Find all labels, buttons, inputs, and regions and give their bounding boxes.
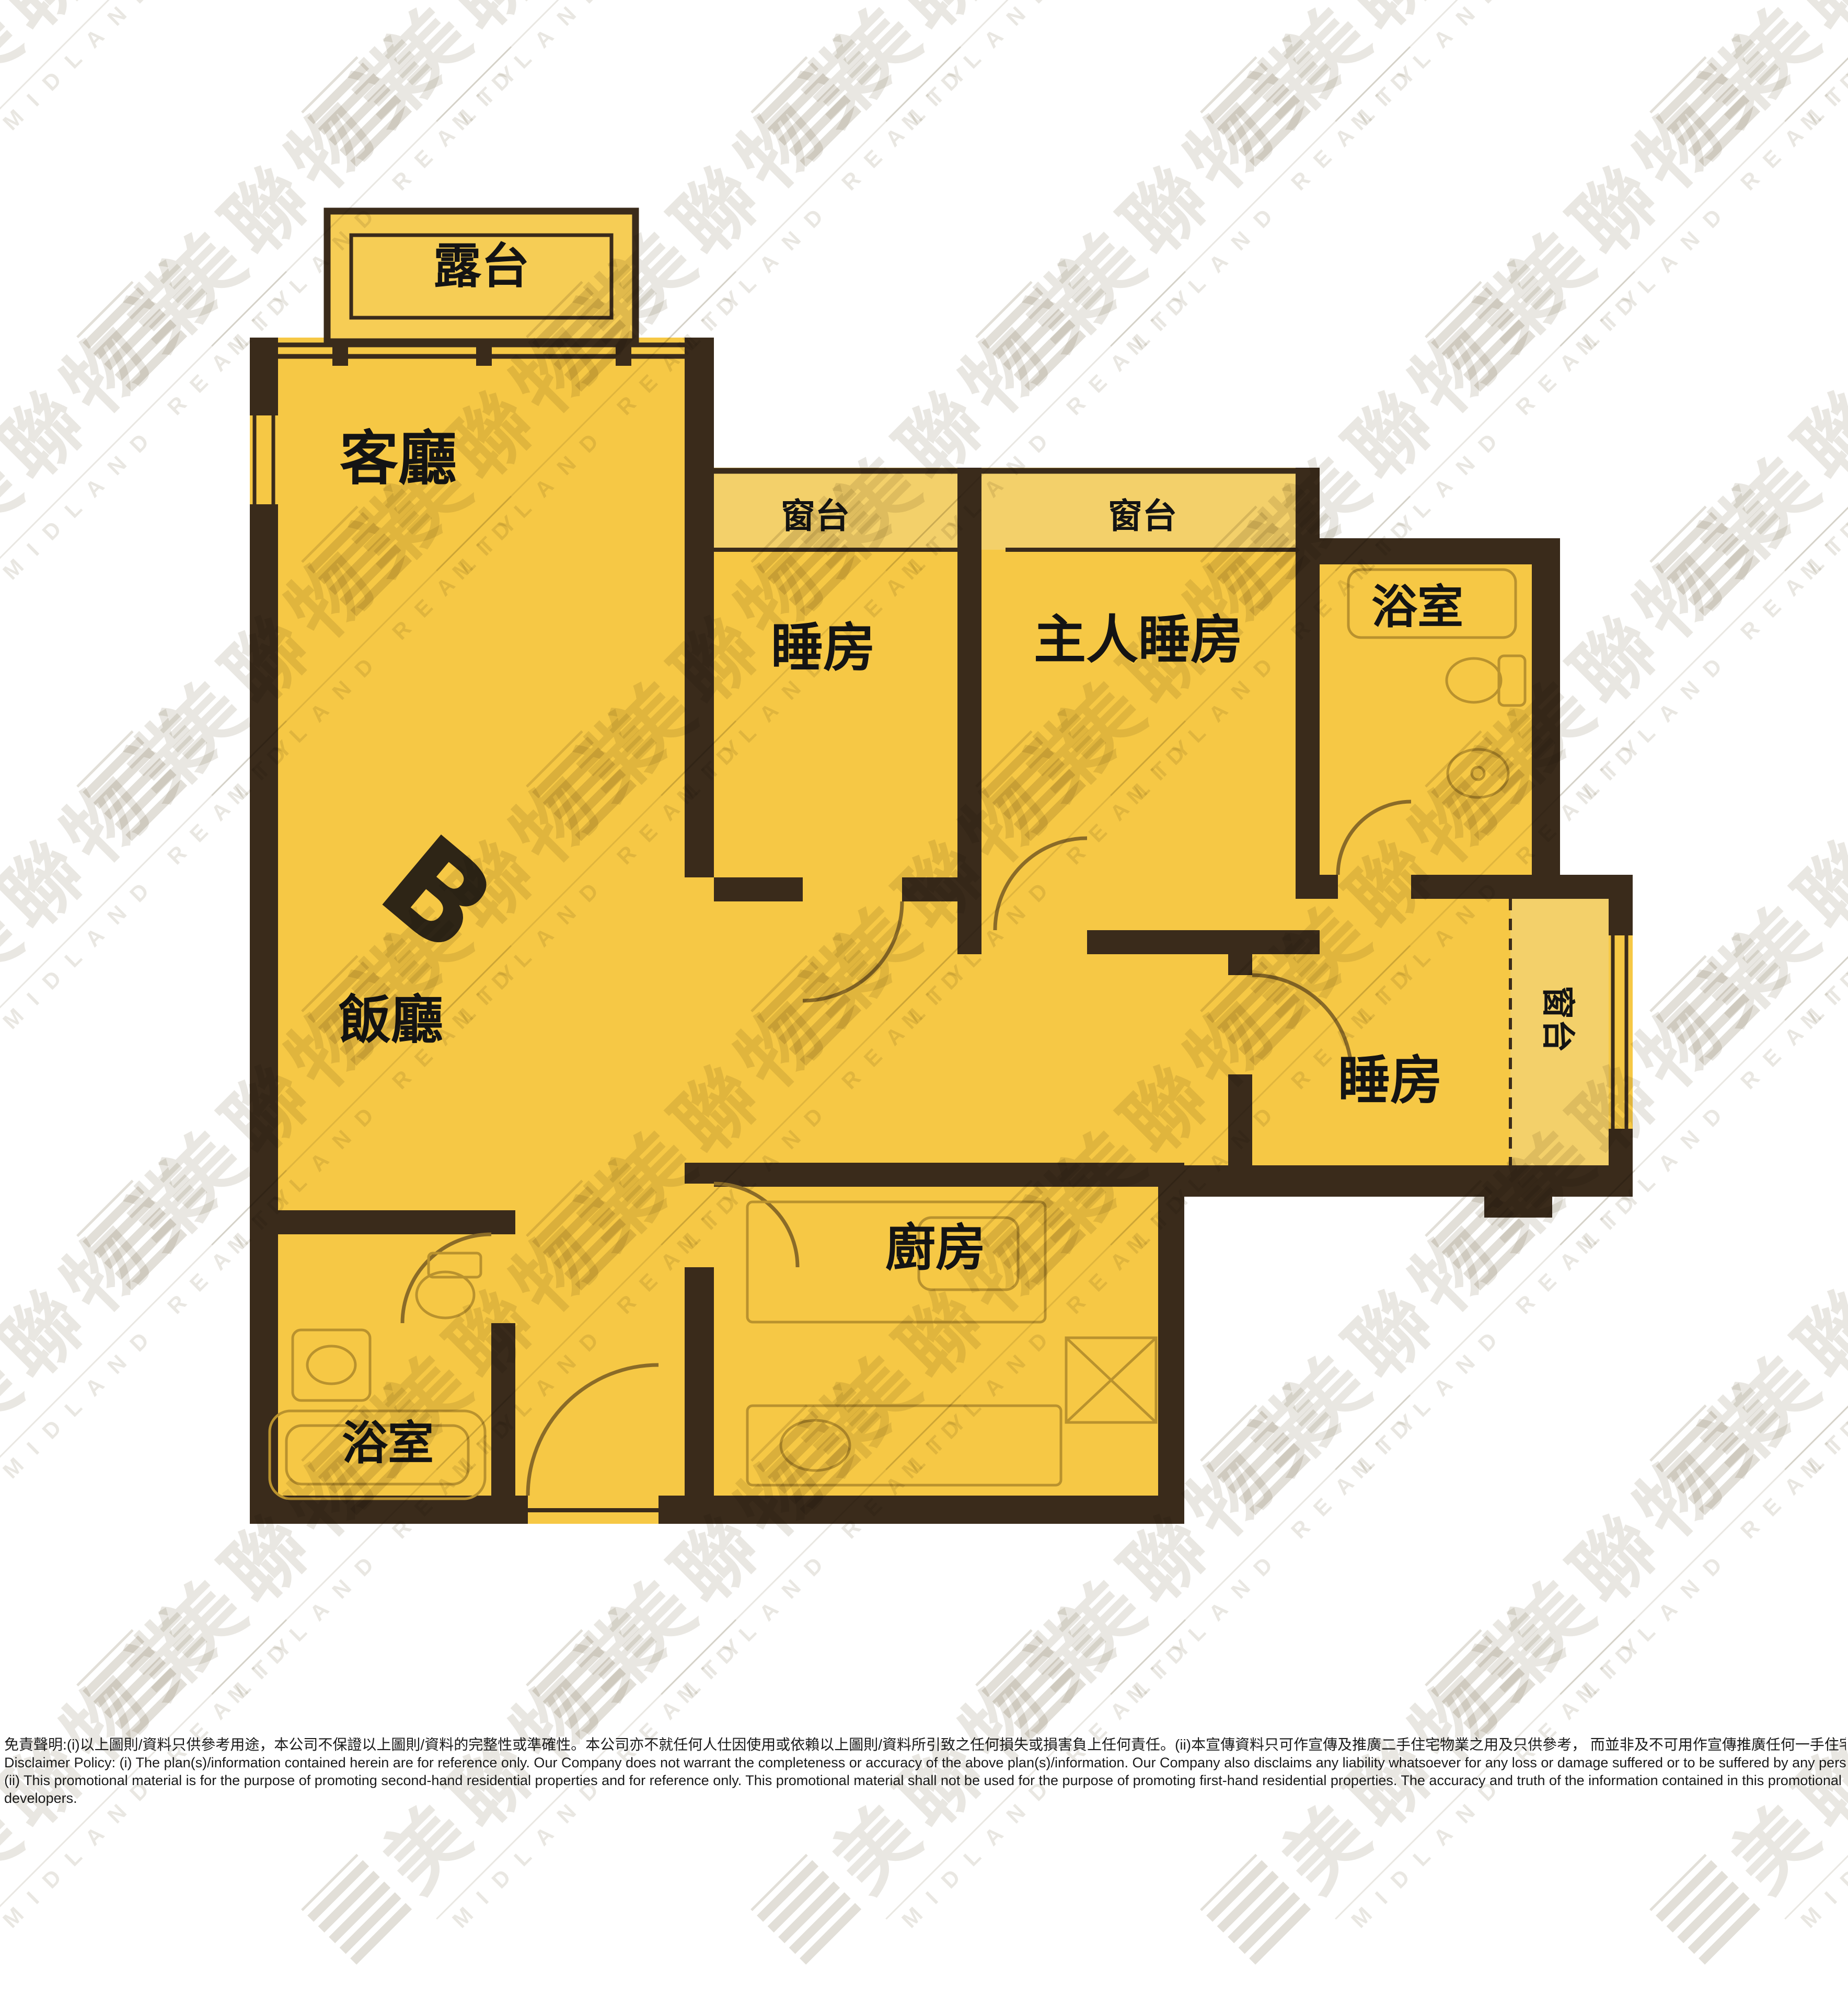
floor-plan-page: { "watermark": { "cn": "美聯物業", "en": "MI… xyxy=(0,0,1848,1812)
label-bedroom-1: 睡房 xyxy=(771,622,875,674)
area-living-dining xyxy=(250,338,714,1524)
label-master-bedroom: 主人睡房 xyxy=(1034,614,1243,666)
disclaimer-line-en-3: developers. xyxy=(4,1789,1846,1807)
wall-segment xyxy=(957,468,981,954)
wall-segment xyxy=(685,338,714,877)
wall-segment xyxy=(1228,954,1252,975)
wall-segment xyxy=(714,877,803,901)
disclaimer-line-en-2: (ii) This promotional material is for th… xyxy=(4,1772,1846,1789)
label-balcony: 露台 xyxy=(433,242,529,291)
wall-segment xyxy=(1320,538,1560,564)
midland-logo-icon xyxy=(750,1854,861,1965)
wall-segment xyxy=(1228,1074,1252,1197)
wall-segment xyxy=(1411,875,1633,899)
wall-corner-step xyxy=(1484,1186,1552,1218)
wall-segment xyxy=(250,338,278,1524)
disclaimer-line-en-1: Disclaimer Policy: (i) The plan(s)/infor… xyxy=(4,1754,1846,1772)
disclaimer-line-zh: 免責聲明:(i)以上圖則/資料只供參考用途，本公司不保證以上圖則/資料的完整性或… xyxy=(4,1736,1846,1754)
midland-logo-icon xyxy=(1200,1854,1311,1965)
wall-segment xyxy=(491,1323,515,1524)
wall-segment xyxy=(902,877,957,901)
wall-segment xyxy=(1087,930,1320,954)
label-living-room: 客廳 xyxy=(340,430,457,488)
wall-segment xyxy=(1158,1163,1184,1524)
wall-segment xyxy=(685,1267,714,1524)
label-kitchen: 廚房 xyxy=(885,1223,986,1273)
label-dining-room: 飯廳 xyxy=(339,994,443,1046)
floor-plan-graphic xyxy=(0,0,1848,1812)
label-bay-window-2: 窗台 xyxy=(1108,499,1177,534)
label-bay-window-1: 窗台 xyxy=(781,499,850,534)
wall-segment xyxy=(1296,468,1320,899)
label-bathroom-lower: 浴室 xyxy=(342,1420,434,1466)
wall-segment xyxy=(685,1163,714,1184)
label-bathroom-upper: 浴室 xyxy=(1371,584,1463,630)
midland-logo-icon xyxy=(1649,1854,1760,1965)
wall-segment xyxy=(250,1210,515,1234)
label-bedroom-2: 睡房 xyxy=(1338,1055,1442,1107)
label-bay-window-3: 窗台 xyxy=(1541,986,1574,1052)
disclaimer-block: 免責聲明:(i)以上圖則/資料只供參考用途，本公司不保證以上圖則/資料的完整性或… xyxy=(4,1736,1846,1807)
wall-segment xyxy=(714,1163,1184,1187)
wall-segment xyxy=(1532,538,1560,899)
midland-logo-icon xyxy=(301,1854,412,1965)
wall-segment xyxy=(1609,1129,1633,1197)
